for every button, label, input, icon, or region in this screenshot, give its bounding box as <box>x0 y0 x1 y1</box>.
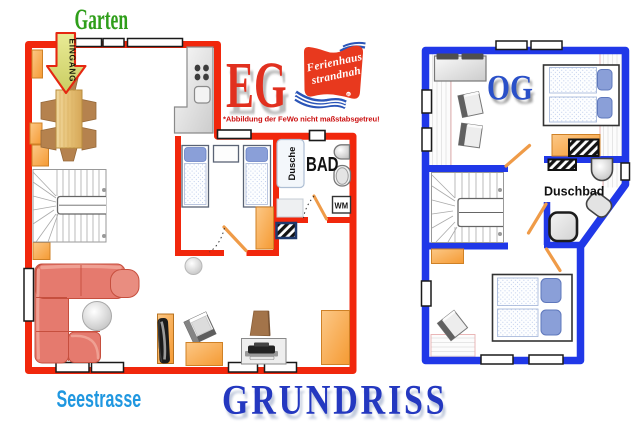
svg-text:EG: EG <box>226 49 287 122</box>
svg-text:Duschbad: Duschbad <box>544 185 604 199</box>
svg-text:OG: OG <box>487 69 533 108</box>
svg-text:GRUNDRISS: GRUNDRISS <box>222 378 447 424</box>
svg-text:Seestrasse: Seestrasse <box>57 386 142 413</box>
svg-text:WM: WM <box>335 201 349 210</box>
svg-text:Garten: Garten <box>75 3 129 36</box>
svg-text:EINGANG: EINGANG <box>68 39 77 83</box>
svg-text:Dusche: Dusche <box>286 147 297 181</box>
svg-text:*Abbildung der FeWo nicht maßs: *Abbildung der FeWo nicht maßstabsgetreu… <box>223 115 380 124</box>
svg-text:R: R <box>347 93 350 97</box>
svg-text:BAD: BAD <box>306 153 339 176</box>
